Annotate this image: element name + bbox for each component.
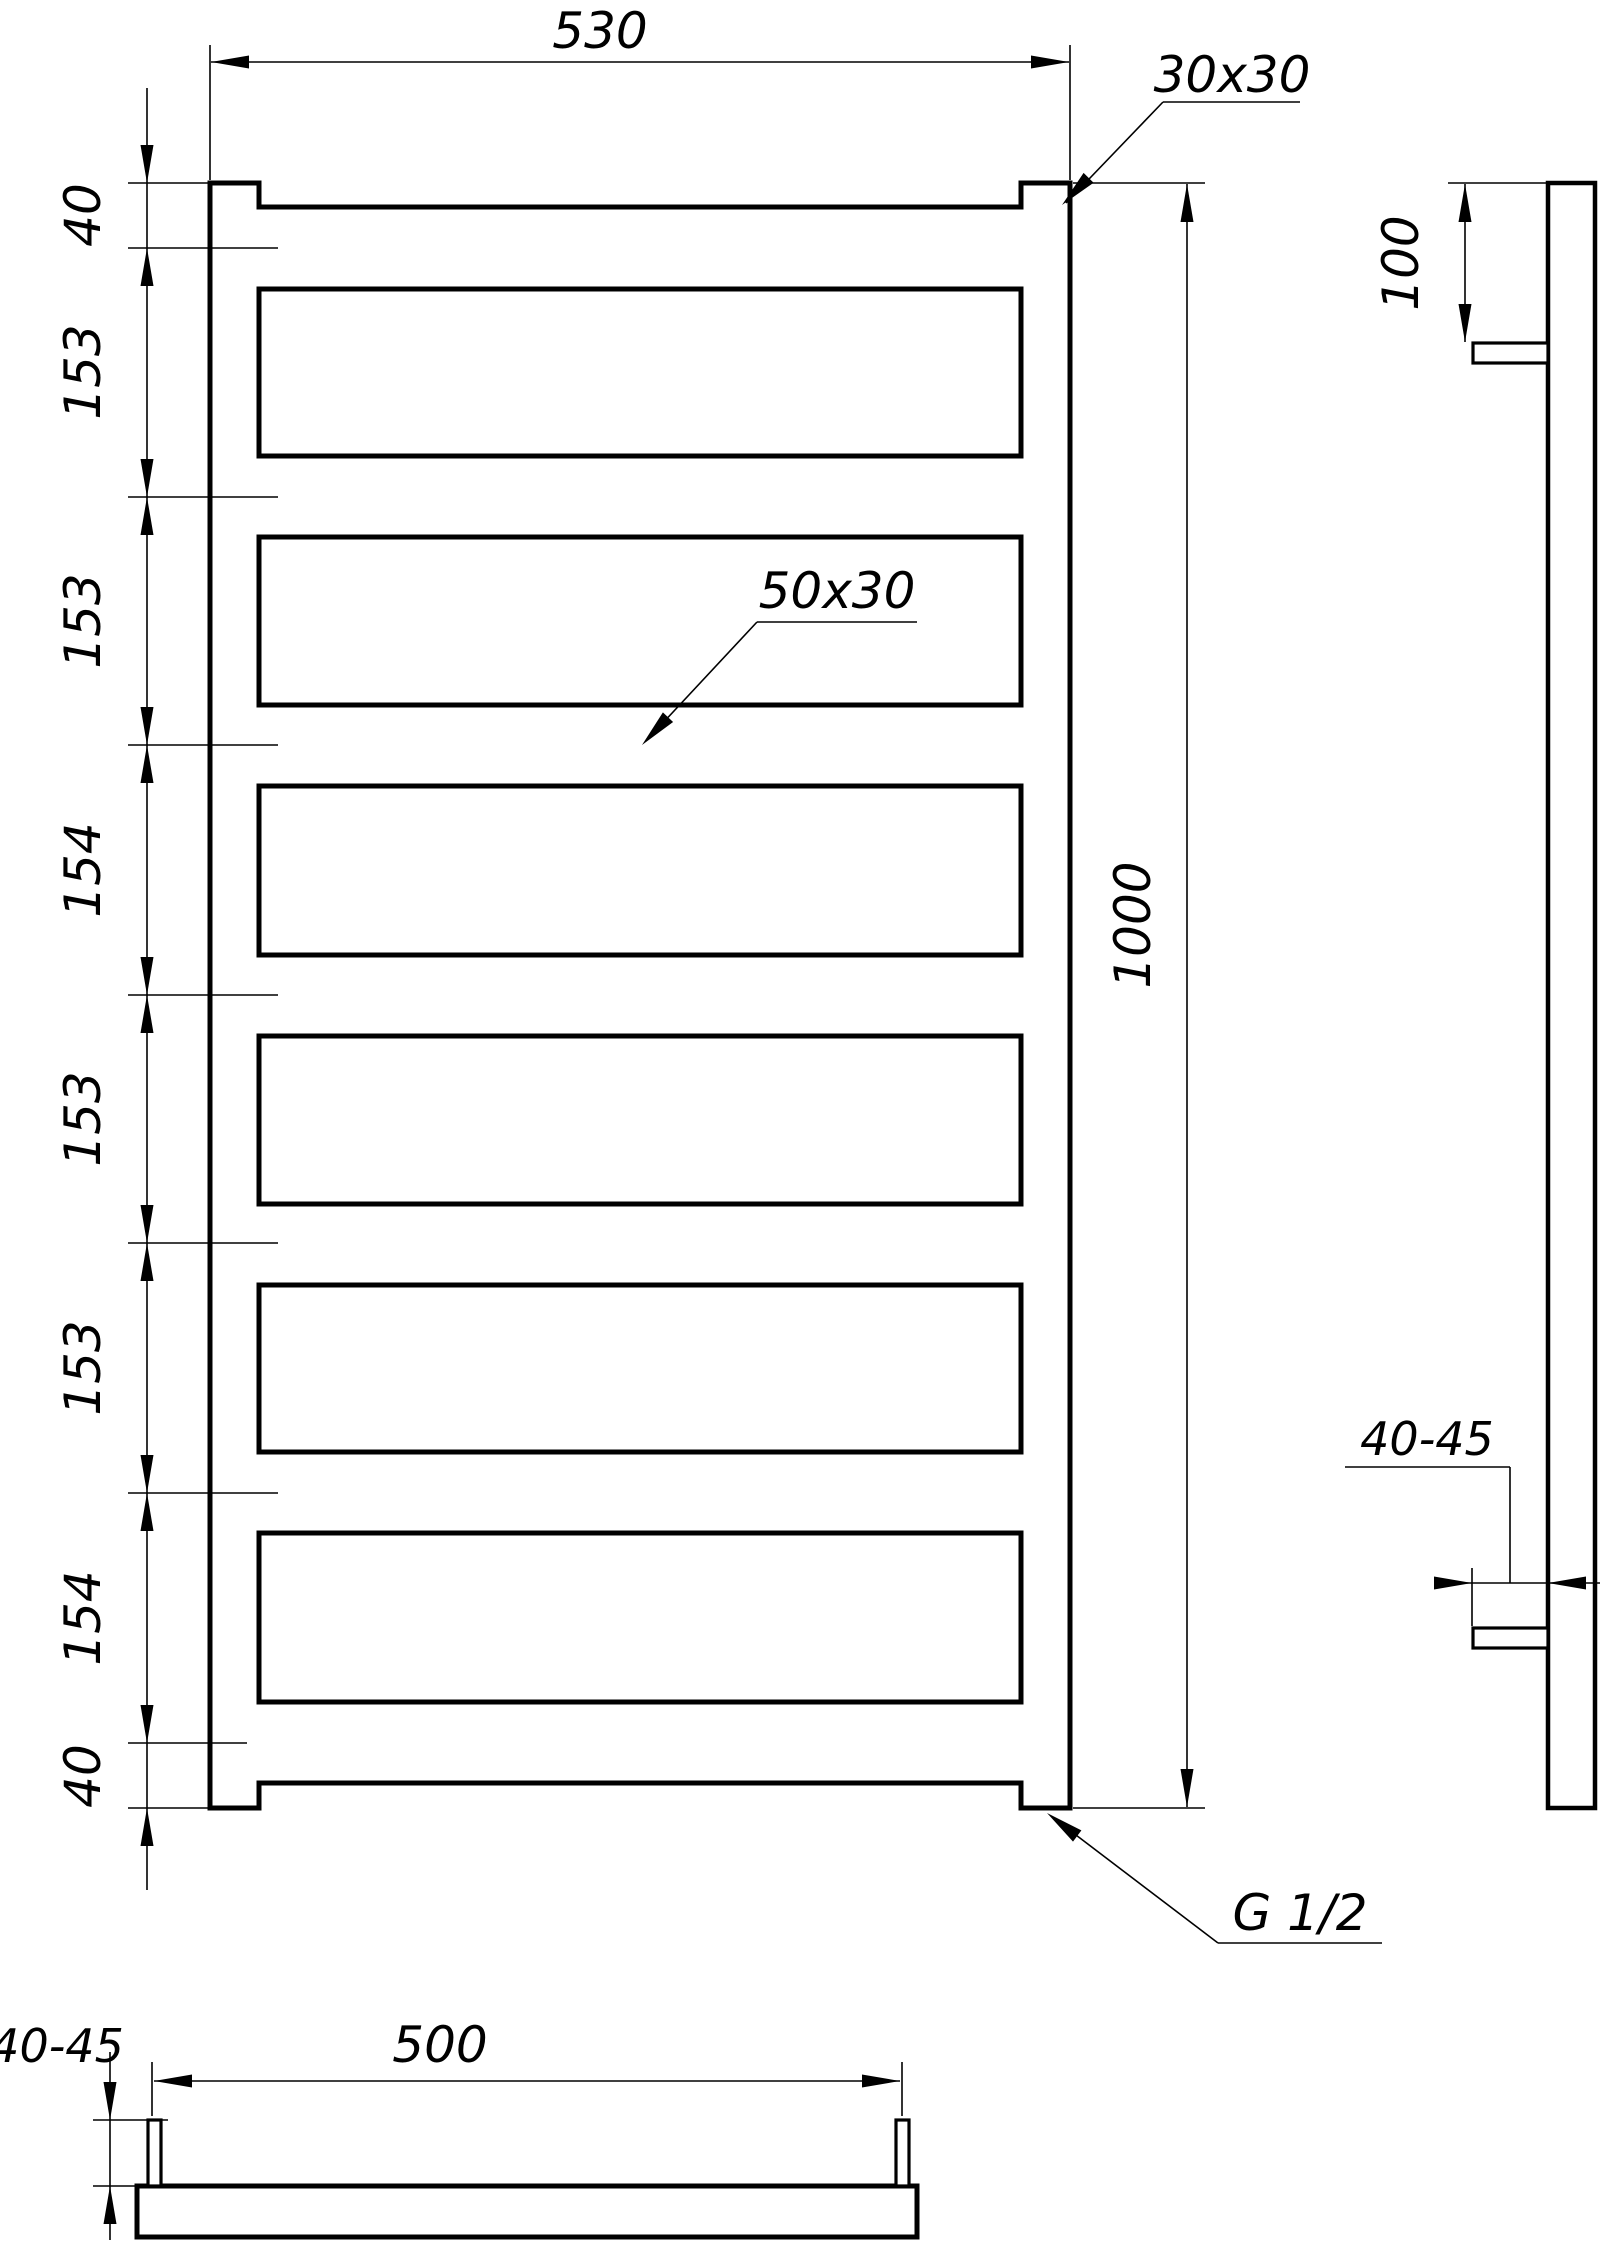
spacing-dim-4: 154 bbox=[54, 822, 112, 917]
drawing-sheet: 530 30x30 1000 50x30 G 1/2 bbox=[0, 0, 1600, 2241]
rung-opening-3 bbox=[259, 786, 1021, 955]
spacing-dim-2: 153 bbox=[54, 324, 112, 419]
dim-bracket-spacing: 500 bbox=[152, 2016, 902, 2116]
corner-profile-text: 30x30 bbox=[1154, 46, 1311, 104]
callout-thread: G 1/2 bbox=[1047, 1813, 1382, 1943]
callout-rung-profile: 50x30 bbox=[642, 562, 917, 745]
wall-bracket-bottom bbox=[1473, 1628, 1548, 1648]
dim-width: 530 bbox=[210, 2, 1070, 180]
dim-bracket-spacing-text: 500 bbox=[392, 2016, 487, 2074]
bracket-right bbox=[896, 2120, 909, 2186]
spacing-dim-5: 153 bbox=[54, 1071, 112, 1166]
dim-width-text: 530 bbox=[552, 2, 647, 60]
rung-opening-4 bbox=[259, 1036, 1021, 1204]
spacing-dim-7: 154 bbox=[54, 1570, 112, 1665]
rung-profile-text: 50x30 bbox=[759, 562, 916, 620]
dim-side-standoff-text: 40-45 bbox=[1360, 1412, 1494, 1466]
side-tube bbox=[1548, 183, 1595, 1808]
spacing-dim-8: 40 bbox=[54, 1744, 112, 1808]
dim-height-text: 1000 bbox=[1104, 861, 1162, 988]
dim-spacing-chain: 40 153 153 154 153 153 154 40 bbox=[54, 88, 278, 1890]
dim-bottom-standoff: 40-45 bbox=[0, 2019, 168, 2240]
spacing-dim-1: 40 bbox=[54, 183, 112, 247]
rung-opening-1 bbox=[259, 289, 1021, 456]
frame-outline bbox=[210, 183, 1070, 1808]
bottom-view: 500 40-45 bbox=[0, 2016, 917, 2240]
rung-opening-6 bbox=[259, 1533, 1021, 1702]
callout-corner-profile: 30x30 bbox=[1062, 46, 1310, 205]
dim-height: 1000 bbox=[1073, 183, 1205, 1808]
bracket-left bbox=[148, 2120, 161, 2186]
dim-bracket-offset-text: 100 bbox=[1372, 215, 1430, 310]
towel-rail-drawing: 530 30x30 1000 50x30 G 1/2 bbox=[0, 0, 1600, 2241]
spacing-dim-3: 153 bbox=[54, 573, 112, 668]
side-view: 100 40-45 bbox=[1345, 183, 1600, 1808]
rail-profile bbox=[137, 2186, 917, 2237]
spacing-dim-6: 153 bbox=[54, 1320, 112, 1415]
thread-text: G 1/2 bbox=[1232, 1884, 1367, 1942]
dim-side-standoff: 40-45 bbox=[1345, 1412, 1600, 1626]
wall-bracket-top bbox=[1473, 343, 1548, 363]
dim-bracket-offset: 100 bbox=[1372, 183, 1549, 342]
dim-bottom-standoff-text: 40-45 bbox=[0, 2019, 124, 2073]
rung-opening-5 bbox=[259, 1285, 1021, 1452]
front-view bbox=[210, 183, 1070, 1808]
